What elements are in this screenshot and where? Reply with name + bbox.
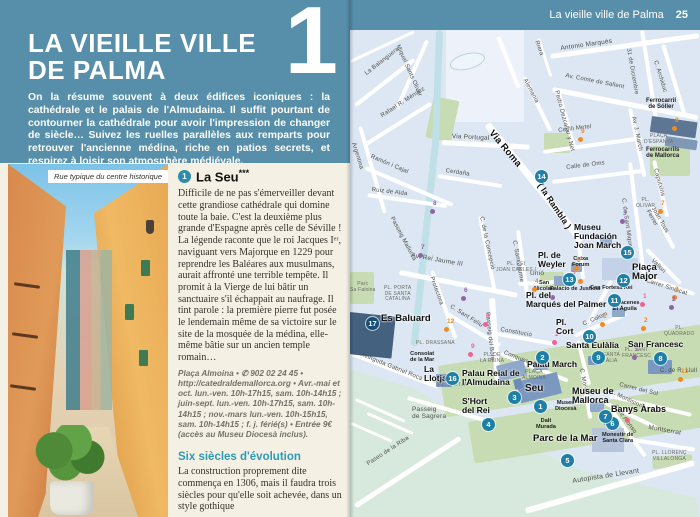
map-dot (468, 352, 473, 357)
map-poi-label: Pl. de Weyler (538, 251, 566, 269)
map-dot (641, 326, 646, 331)
map-dot-number: 9 (581, 128, 585, 135)
map-dot (578, 137, 583, 142)
map-dot-number: 6 (486, 313, 490, 320)
photo-pot (50, 481, 94, 515)
poi-heading: 1 La Seu*** (178, 168, 346, 184)
chapter-title-line1: LA VIEILLE VILLE (28, 28, 256, 58)
map-place-label: PL. DE LA REINA (480, 353, 504, 364)
map-dot-number: 3 (675, 286, 679, 293)
map-dot-number: 12 (447, 318, 454, 325)
map-dot (444, 327, 449, 332)
poi-number-badge: 1 (178, 170, 191, 183)
map-dot-number: 3 (623, 210, 627, 217)
map-poi-circle: 2 (536, 351, 549, 364)
poi-body-text: Difficile de ne pas s'émerveiller devant… (178, 188, 346, 364)
map-place-label: PLAÇA ALMOINA (522, 370, 546, 381)
poi-stars: *** (239, 168, 250, 178)
map-place-label: Monestir de Santa Clara (602, 432, 633, 444)
map-dot-number: 8 (675, 117, 679, 124)
chapter-title-line2: DE PALMA (28, 55, 166, 85)
map-dot-number: 1 (603, 313, 607, 320)
map-street-label: C. Archiduc (652, 60, 667, 93)
map-dot (640, 302, 645, 307)
map-dot-number: 1 (643, 293, 647, 300)
map-street-label: 31 de Diciembre (625, 48, 639, 95)
map-poi-circle: 8 (654, 352, 667, 365)
chapter-number: 1 (285, 0, 338, 96)
map-poi-label: Santa Eulàlia (566, 341, 619, 350)
map-street-label: C. de R. Llull (660, 368, 697, 374)
map-poi-circle: 11 (608, 294, 621, 307)
map-poi-circle: 1 (534, 400, 547, 413)
map-dot-number: 7 (661, 200, 665, 207)
map-dot (430, 209, 435, 214)
map-poi-label: Museu Fundación Joan March (574, 223, 621, 250)
map-poi-circle: 12 (617, 274, 630, 287)
map-poi-circle: 4 (482, 418, 495, 431)
map-dot (669, 305, 674, 310)
map-poi-label: S'Hort del Rei (462, 397, 490, 415)
map-poi-circle: 17 (366, 317, 379, 330)
poi-title: La Seu*** (196, 168, 249, 184)
map-poi-circle: 13 (563, 273, 576, 286)
map-dot (600, 322, 605, 327)
map-dot-number: 6 (464, 287, 468, 294)
map-poi-circle: 9 (592, 351, 605, 364)
map-dot-number: 4 (535, 278, 539, 285)
map-poi-circle: 16 (446, 372, 459, 385)
photo-caption: Rue typique du centre historique (48, 170, 168, 183)
map-street-line (437, 174, 502, 188)
map-dot (632, 355, 637, 360)
map-dot (625, 418, 630, 423)
map-place-label: Consolat de la Mar (410, 351, 434, 363)
photo-plant (32, 425, 106, 489)
map-poi-label: Museu de Mallorca (572, 387, 614, 405)
right-page: La vieille ville de Palma 25 0 100 200 m… (350, 0, 700, 517)
map-dot-number: 2 (644, 317, 648, 324)
map-dot-number: 7 (421, 244, 425, 251)
subsection-body-text: La construction proprement dite commença… (178, 466, 346, 513)
map-place-label: Ferrocarril de Sóller (646, 98, 676, 110)
map-dot (461, 296, 466, 301)
street-photo: Rue typique du centre historique (8, 164, 168, 517)
map-street-label: Passeig Mallorca (389, 216, 417, 262)
map-dot-number: 13 (681, 368, 688, 375)
map-dot-number: 6 (577, 257, 581, 264)
map-place-label: Dalt Murada (536, 418, 556, 430)
map-place-label: PL. OLIVAR (636, 198, 655, 209)
page-spine-shadow (346, 0, 354, 517)
map-poi-label: Es Baluard (381, 314, 431, 323)
map-place-label: PL. LLORENÇ VILLALONGA (652, 451, 687, 462)
left-page: LA VIEILLE VILLE DE PALMA 1 On la résume… (0, 0, 350, 517)
map-poi-label: Banys Àrabs (611, 405, 666, 414)
map-poi-label: Parc de la Mar (533, 434, 597, 443)
city-map: 0 100 200 m Via Roma( la Rambla )La Bala… (350, 30, 700, 517)
map-poi-label: Seu (525, 384, 543, 393)
map-poi-label: Plaça Major (632, 263, 657, 281)
map-poi-label: Pl. del Marqués del Palmer (526, 291, 606, 309)
practical-info: Plaça Almoina • ✆ 902 02 24 45 • http://… (178, 369, 346, 440)
map-street-label: Alemania (522, 78, 540, 104)
photo-shutter (139, 350, 148, 366)
map-dot (418, 253, 423, 258)
map-dot (483, 322, 488, 327)
photo-shutter (141, 260, 150, 276)
map-dot (678, 377, 683, 382)
map-dot (578, 279, 583, 284)
map-poi-circle: 5 (561, 454, 574, 467)
map-poi-label: Pl. Cort (556, 318, 573, 336)
map-place-label: Ferrocarrils de Mallorca (646, 147, 679, 159)
running-header: La vieille ville de Palma 25 (350, 0, 700, 30)
map-street-label: Av. J. March (630, 116, 643, 152)
map-dot (672, 126, 677, 131)
map-poi-circle: 15 (621, 246, 634, 259)
map-poi-circle: 14 (535, 170, 548, 183)
map-poi-label: San Francesc (628, 340, 683, 349)
guidebook-spread: LA VIEILLE VILLE DE PALMA 1 On la résume… (0, 0, 700, 517)
chapter-header: LA VIEILLE VILLE DE PALMA 1 On la résume… (0, 0, 350, 163)
map-poi-circle: 10 (583, 330, 596, 343)
map-dot-number: 2 (672, 296, 676, 303)
map-dot (552, 340, 557, 345)
map-poi-circle: 7 (599, 410, 612, 423)
map-place-label: PL. DRASSANA (416, 341, 455, 347)
map-poi-label: Palau March (527, 360, 577, 369)
map-dot (658, 209, 663, 214)
map-street-label: ( la Rambla ) (536, 181, 574, 231)
map-poi-label: Palau Reial de l'Almudaina (462, 369, 520, 387)
chapter-intro: On la résume souvent à deux édifices ico… (28, 92, 330, 169)
map-street-label: C. de la Concepció (478, 216, 495, 270)
map-street-label: Passeig de Sagrera (412, 406, 446, 420)
map-poi-circle: 3 (508, 391, 521, 404)
map-place-label: PL. QUADRADO (664, 326, 695, 337)
running-header-title: La vieille ville de Palma (549, 9, 663, 21)
map-street-label: Calle de Oms (566, 160, 605, 171)
map-street-label: Av. Comte de Sallent (565, 73, 625, 90)
map-dot-number: 8 (433, 200, 437, 207)
map-place-label: PLAÇA D'ESPANYA (644, 134, 673, 145)
map-place-label: PL. PORTA DE SANTA CATALINA (384, 286, 411, 303)
photo-shutter (125, 304, 134, 320)
map-dot-number: 9 (471, 343, 475, 350)
article-column: 1 La Seu*** Difficile de ne pas s'émerve… (178, 168, 346, 513)
page-number: 25 (676, 9, 688, 21)
photo-lantern (146, 220, 154, 234)
map-place-label: PL. REI JOAN CARLES I (496, 262, 536, 273)
map-poi-label: La Llotja (424, 365, 447, 383)
photo-far-buildings (66, 250, 112, 410)
subsection-heading: Six siècles d'évolution (178, 451, 346, 463)
